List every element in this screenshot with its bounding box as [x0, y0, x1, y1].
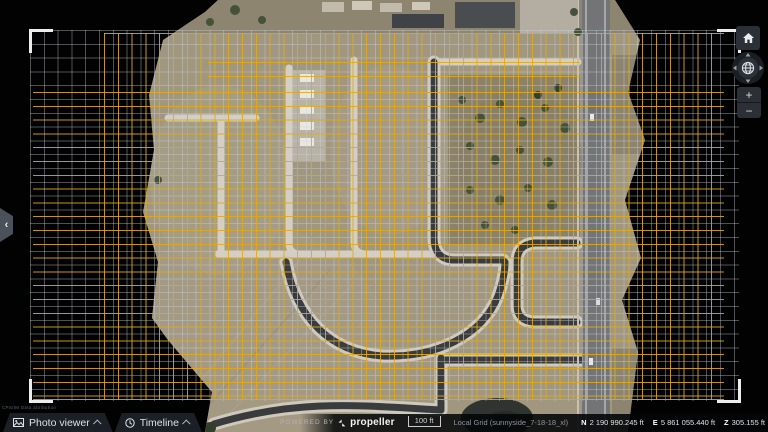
easting-readout: E5 861 055.440 ft	[653, 418, 715, 427]
scale-bar: 100 ft	[408, 416, 441, 427]
northing-value: 2 190 990.245 ft	[590, 418, 644, 427]
tab-photo-viewer[interactable]: Photo viewer	[3, 413, 113, 432]
image-icon	[13, 418, 24, 427]
zoom-in-button[interactable]: +	[737, 87, 761, 103]
zoom-control: + −	[737, 87, 761, 118]
tab-timeline[interactable]: Timeline	[115, 413, 202, 432]
tab-photo-viewer-label: Photo viewer	[29, 417, 90, 429]
chevron-up-icon	[182, 419, 190, 427]
tab-timeline-label: Timeline	[140, 417, 179, 429]
elevation-readout: Z305.155 ft	[724, 418, 765, 427]
propeller-logo-icon	[338, 419, 346, 427]
propeller-brand-label: propeller	[350, 417, 395, 428]
easting-value: 5 861 055.440 ft	[661, 418, 715, 427]
chevron-up-icon	[93, 419, 101, 427]
northing-readout: N2 190 990.245 ft	[581, 418, 644, 427]
coordinate-system-label: Local Grid (sunnyside_7-18-18_xl)	[454, 418, 569, 427]
cursor-coordinates: N2 190 990.245 ft E5 861 055.440 ft Z305…	[581, 418, 765, 427]
easting-axis: E	[653, 418, 658, 427]
orthophoto-layer	[0, 0, 768, 432]
compass-orbit-control[interactable]	[731, 51, 765, 85]
home-icon	[742, 32, 755, 44]
map-attribution: CPS/IM Data attribution	[2, 405, 56, 410]
powered-by-propeller: POWERED BY propeller	[280, 417, 395, 428]
status-bar: POWERED BY propeller 100 ft Local Grid (…	[280, 413, 765, 432]
clock-icon	[125, 418, 135, 428]
bottom-panel-tabs: Photo viewer Timeline	[3, 413, 202, 432]
home-view-button[interactable]	[736, 26, 760, 50]
northing-axis: N	[581, 418, 586, 427]
elevation-axis: Z	[724, 418, 729, 427]
map-viewport[interactable]: + − ‹ CPS/IM Data attribution Photo view…	[0, 0, 768, 432]
zoom-out-button[interactable]: −	[737, 103, 761, 118]
powered-by-label: POWERED BY	[280, 419, 334, 426]
elevation-value: 305.155 ft	[732, 418, 765, 427]
